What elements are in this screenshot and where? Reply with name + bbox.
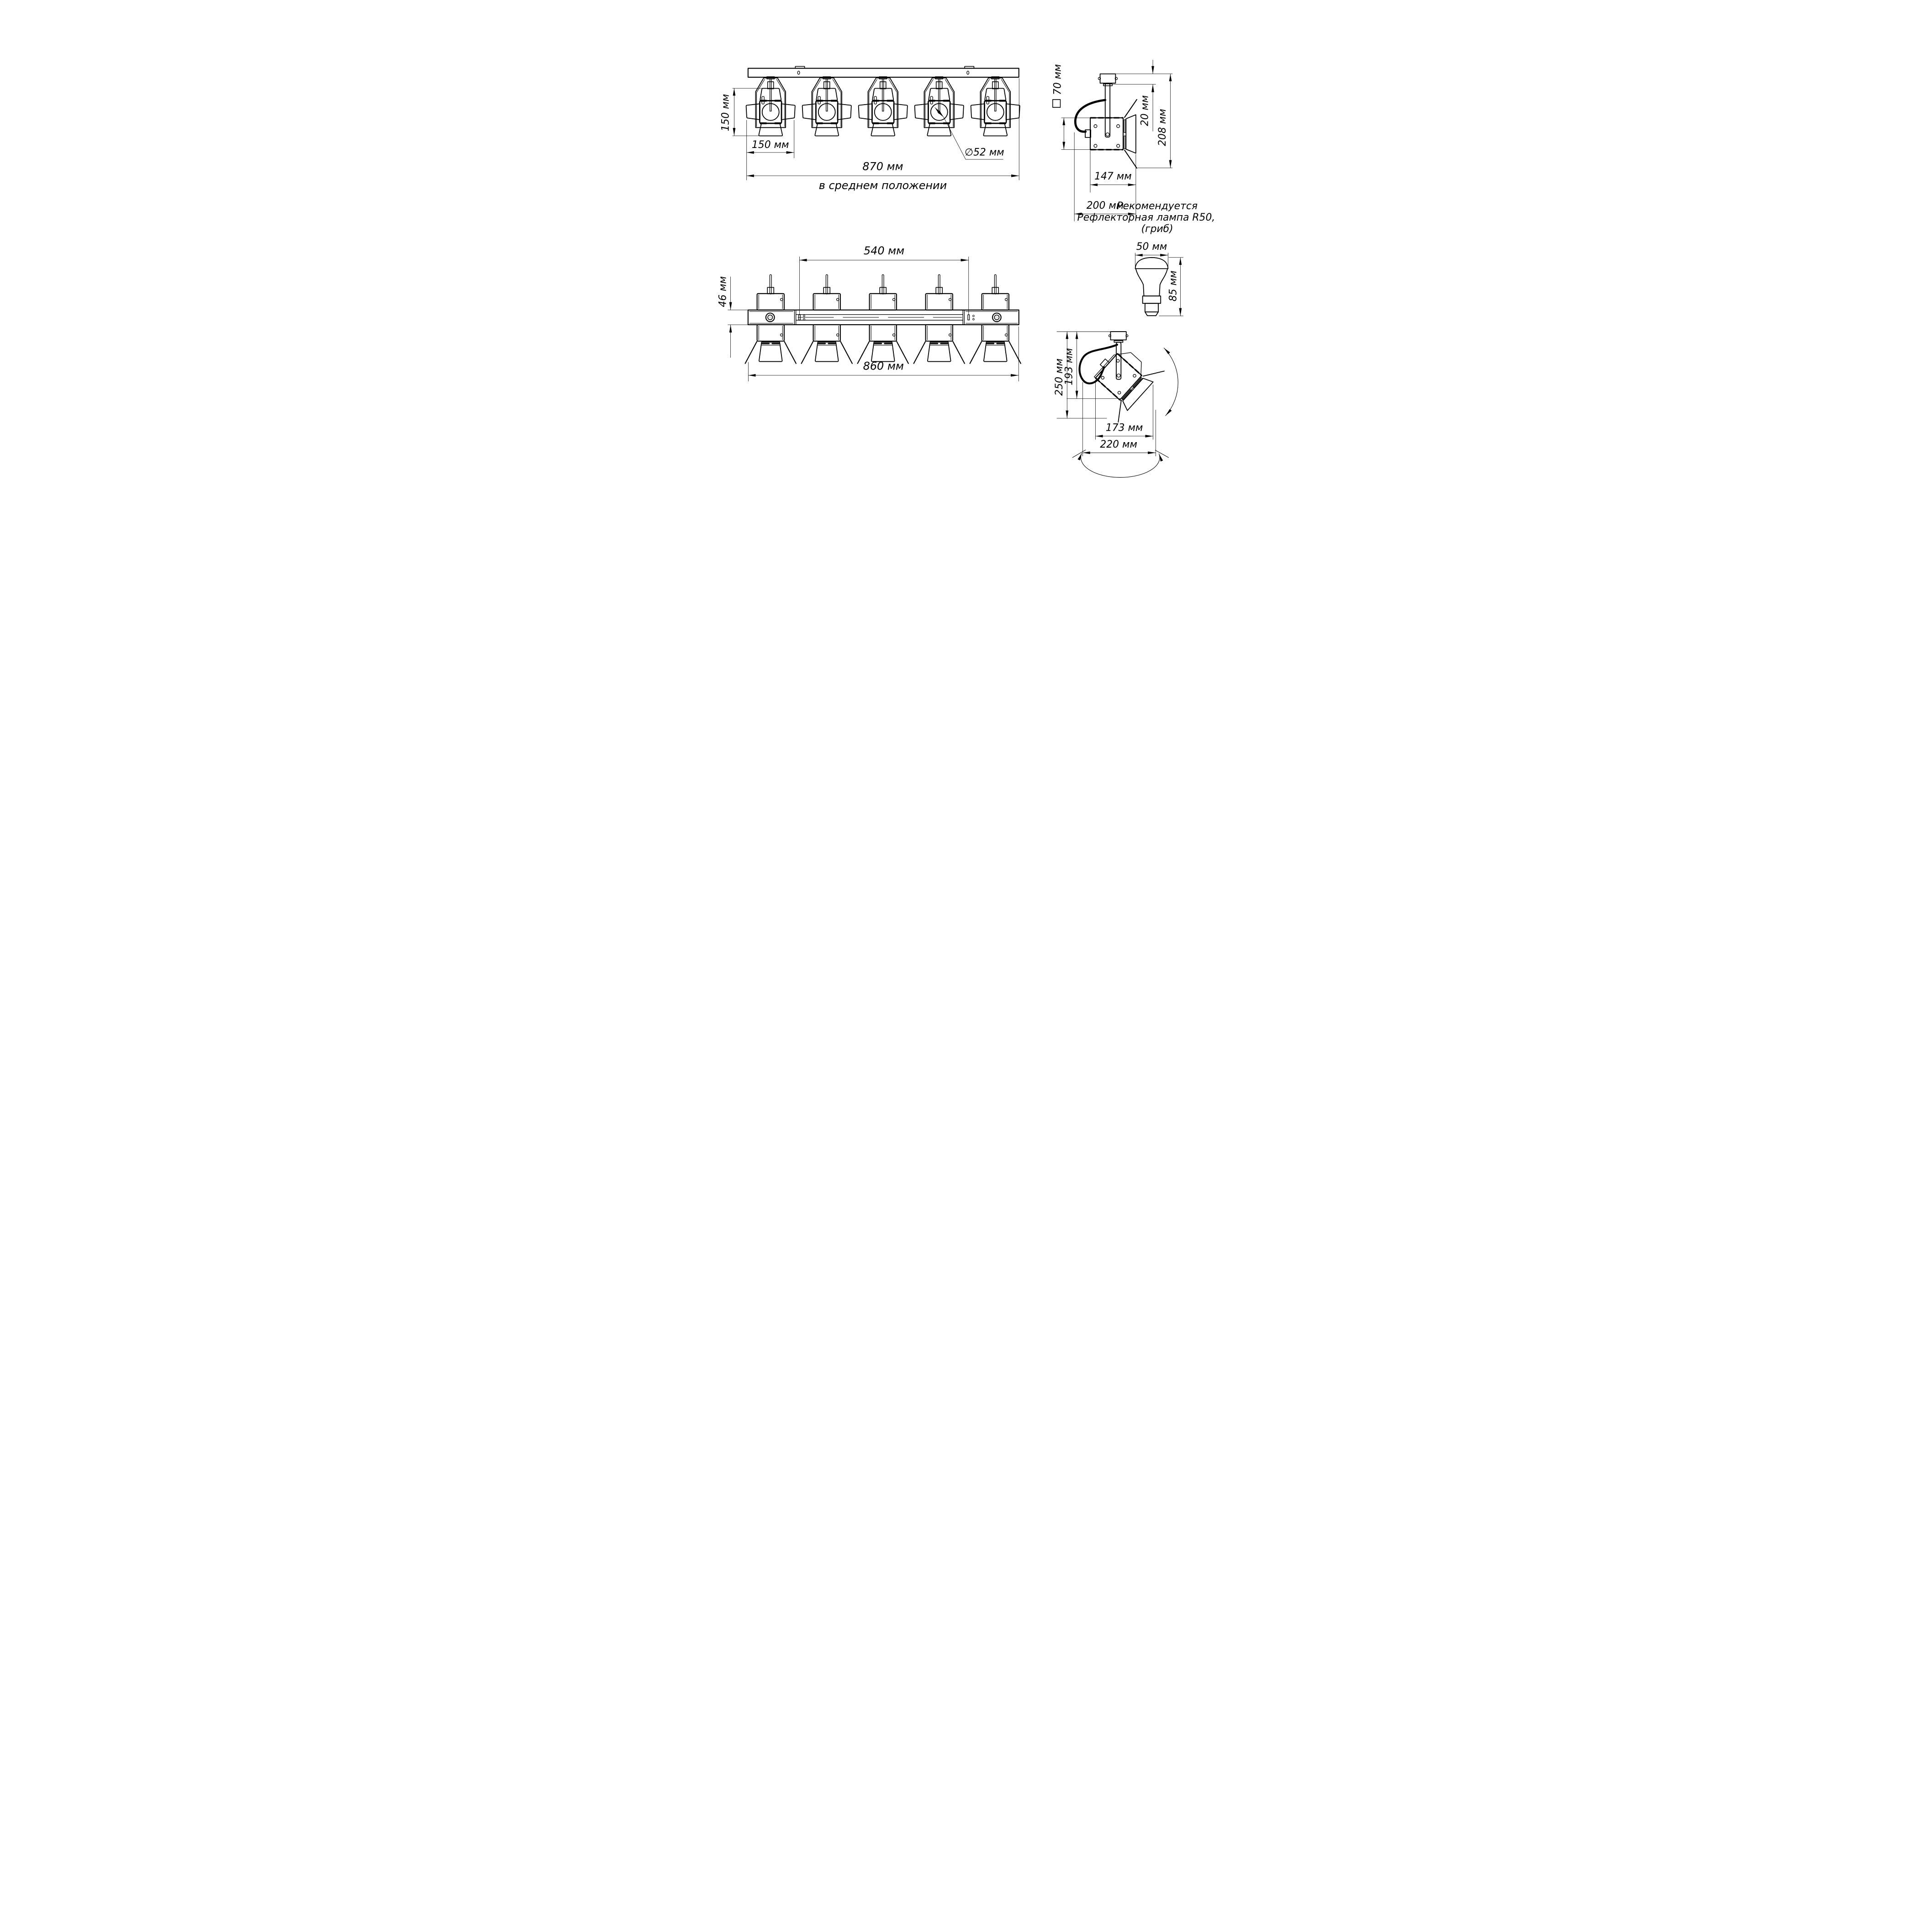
spotlight-fixture-drawing: ∅52 мм 150 мм 150 мм 870 мм в среднем по… xyxy=(715,0,1217,502)
plan-spotlight-2 xyxy=(802,274,852,364)
bulb-height-label: 85 мм xyxy=(1168,270,1179,301)
dim-plan-overall-length: 860 мм xyxy=(748,327,1019,381)
bulb-recommendation: Рекомендуется Рефлекторная лампа R50, Е1… xyxy=(1077,201,1217,316)
tilted-spotlight-body xyxy=(1080,336,1164,422)
lens-diameter-label: ∅52 мм xyxy=(965,147,1004,158)
front-height-label: 150 мм xyxy=(720,94,732,132)
tilt-body-height-label: 193 мм xyxy=(1064,348,1075,385)
front-spotlight-2 xyxy=(802,77,851,136)
side-body-depth-label: 147 мм xyxy=(1094,171,1132,182)
dim-front-flap-width: 150 мм xyxy=(747,120,794,180)
front-spotlight-1 xyxy=(746,77,795,136)
tilt-power-cable xyxy=(1080,345,1118,384)
plan-overall-length-label: 860 мм xyxy=(863,359,904,372)
dim-plan-rail-height: 46 мм xyxy=(718,276,750,358)
side-mount-height-label: 20 мм xyxy=(1140,95,1151,127)
front-overall-width-label: 870 мм xyxy=(862,160,903,173)
front-view-rail xyxy=(748,66,1019,77)
dim-lens-diameter: ∅52 мм xyxy=(935,107,1004,159)
rail-knob-left xyxy=(766,313,775,322)
front-flap-width-label: 150 мм xyxy=(752,139,789,151)
square-section-icon xyxy=(1053,100,1061,107)
plan-spotlight-4 xyxy=(914,274,965,364)
tilt-ceiling-mount xyxy=(1110,332,1126,340)
front-spotlight-5 xyxy=(971,77,1020,136)
rail-knob-right xyxy=(992,313,1001,322)
dim-tilt-body-width: 173 мм xyxy=(1095,380,1153,439)
plan-rail-height-label: 46 мм xyxy=(718,276,729,307)
side-barn-door xyxy=(1126,115,1136,153)
side-overall-height-label: 208 мм xyxy=(1157,109,1168,146)
plan-rail xyxy=(748,310,1019,325)
dim-tilt-overall-width: 220 мм xyxy=(1083,382,1156,456)
plan-view: 540 мм 46 мм 860 мм xyxy=(718,244,1021,381)
technical-drawing-page: ∅52 мм 150 мм 150 мм 870 мм в среднем по… xyxy=(715,0,1217,502)
bulb-diameter-label: 50 мм xyxy=(1136,241,1167,253)
tilt-rotation-arc-icon xyxy=(1164,348,1178,416)
tilt-overall-height-label: 250 мм xyxy=(1054,359,1065,396)
dim-front-overall-width: 870 мм в среднем положении xyxy=(747,79,1019,192)
side-body-square-label: 70 мм xyxy=(1052,64,1063,95)
ceiling-mount xyxy=(1100,74,1116,83)
pan-rotation-arc-icon xyxy=(1072,450,1168,477)
recommend-line2: Рефлекторная лампа R50, Е14 xyxy=(1077,212,1217,223)
front-spotlight-4 xyxy=(915,77,964,136)
plan-spotlight-1 xyxy=(745,274,796,364)
side-stem xyxy=(1105,83,1110,137)
dim-bulb-diameter: 50 мм xyxy=(1135,241,1168,267)
front-view: ∅52 мм 150 мм 150 мм 870 мм в среднем по… xyxy=(720,66,1020,192)
recommend-line1: Рекомендуется xyxy=(1117,201,1198,212)
plan-spotlight-3 xyxy=(858,274,908,364)
recommend-line3: (гриб) xyxy=(1141,223,1173,235)
bulb-drawing xyxy=(1135,258,1168,316)
tilt-body-width-label: 173 мм xyxy=(1106,422,1143,433)
dim-bulb-height: 85 мм xyxy=(1159,258,1183,316)
side-spotlight xyxy=(1075,74,1137,168)
front-position-note: в среднем положении xyxy=(819,179,947,192)
front-spotlight-3 xyxy=(859,77,908,136)
bulb-screw-base xyxy=(1145,303,1158,312)
side-view: 70 мм 20 мм 208 мм 147 мм xyxy=(1052,60,1172,221)
plan-track-length-label: 540 мм xyxy=(864,244,904,257)
tilt-view: 250 мм 193 мм 173 мм 220 мм xyxy=(1054,332,1178,477)
tilt-overall-width-label: 220 мм xyxy=(1100,439,1137,450)
